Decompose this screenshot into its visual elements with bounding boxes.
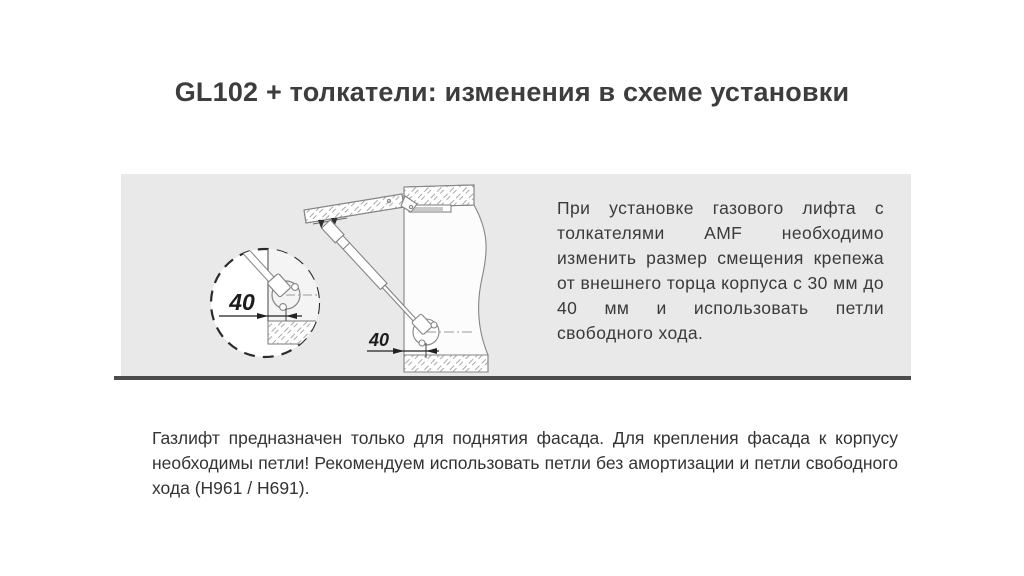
- gas-lift-diagram: 40: [121, 174, 521, 380]
- slide: GL102 + толкатели: изменения в схеме уст…: [0, 0, 1024, 576]
- page-title: GL102 + толкатели: изменения в схеме уст…: [0, 77, 1024, 108]
- footer-note: Газлифт предназначен только для поднятия…: [152, 426, 898, 501]
- detail-dimension-label: 40: [228, 289, 255, 315]
- panel-description: При установке газового лифта с толкателя…: [557, 196, 884, 346]
- info-panel: 40: [121, 174, 911, 376]
- divider-rule: [114, 376, 911, 380]
- main-dimension-label: 40: [368, 330, 389, 350]
- detail-view: 40: [211, 244, 328, 357]
- cabinet-main-view: [304, 185, 488, 372]
